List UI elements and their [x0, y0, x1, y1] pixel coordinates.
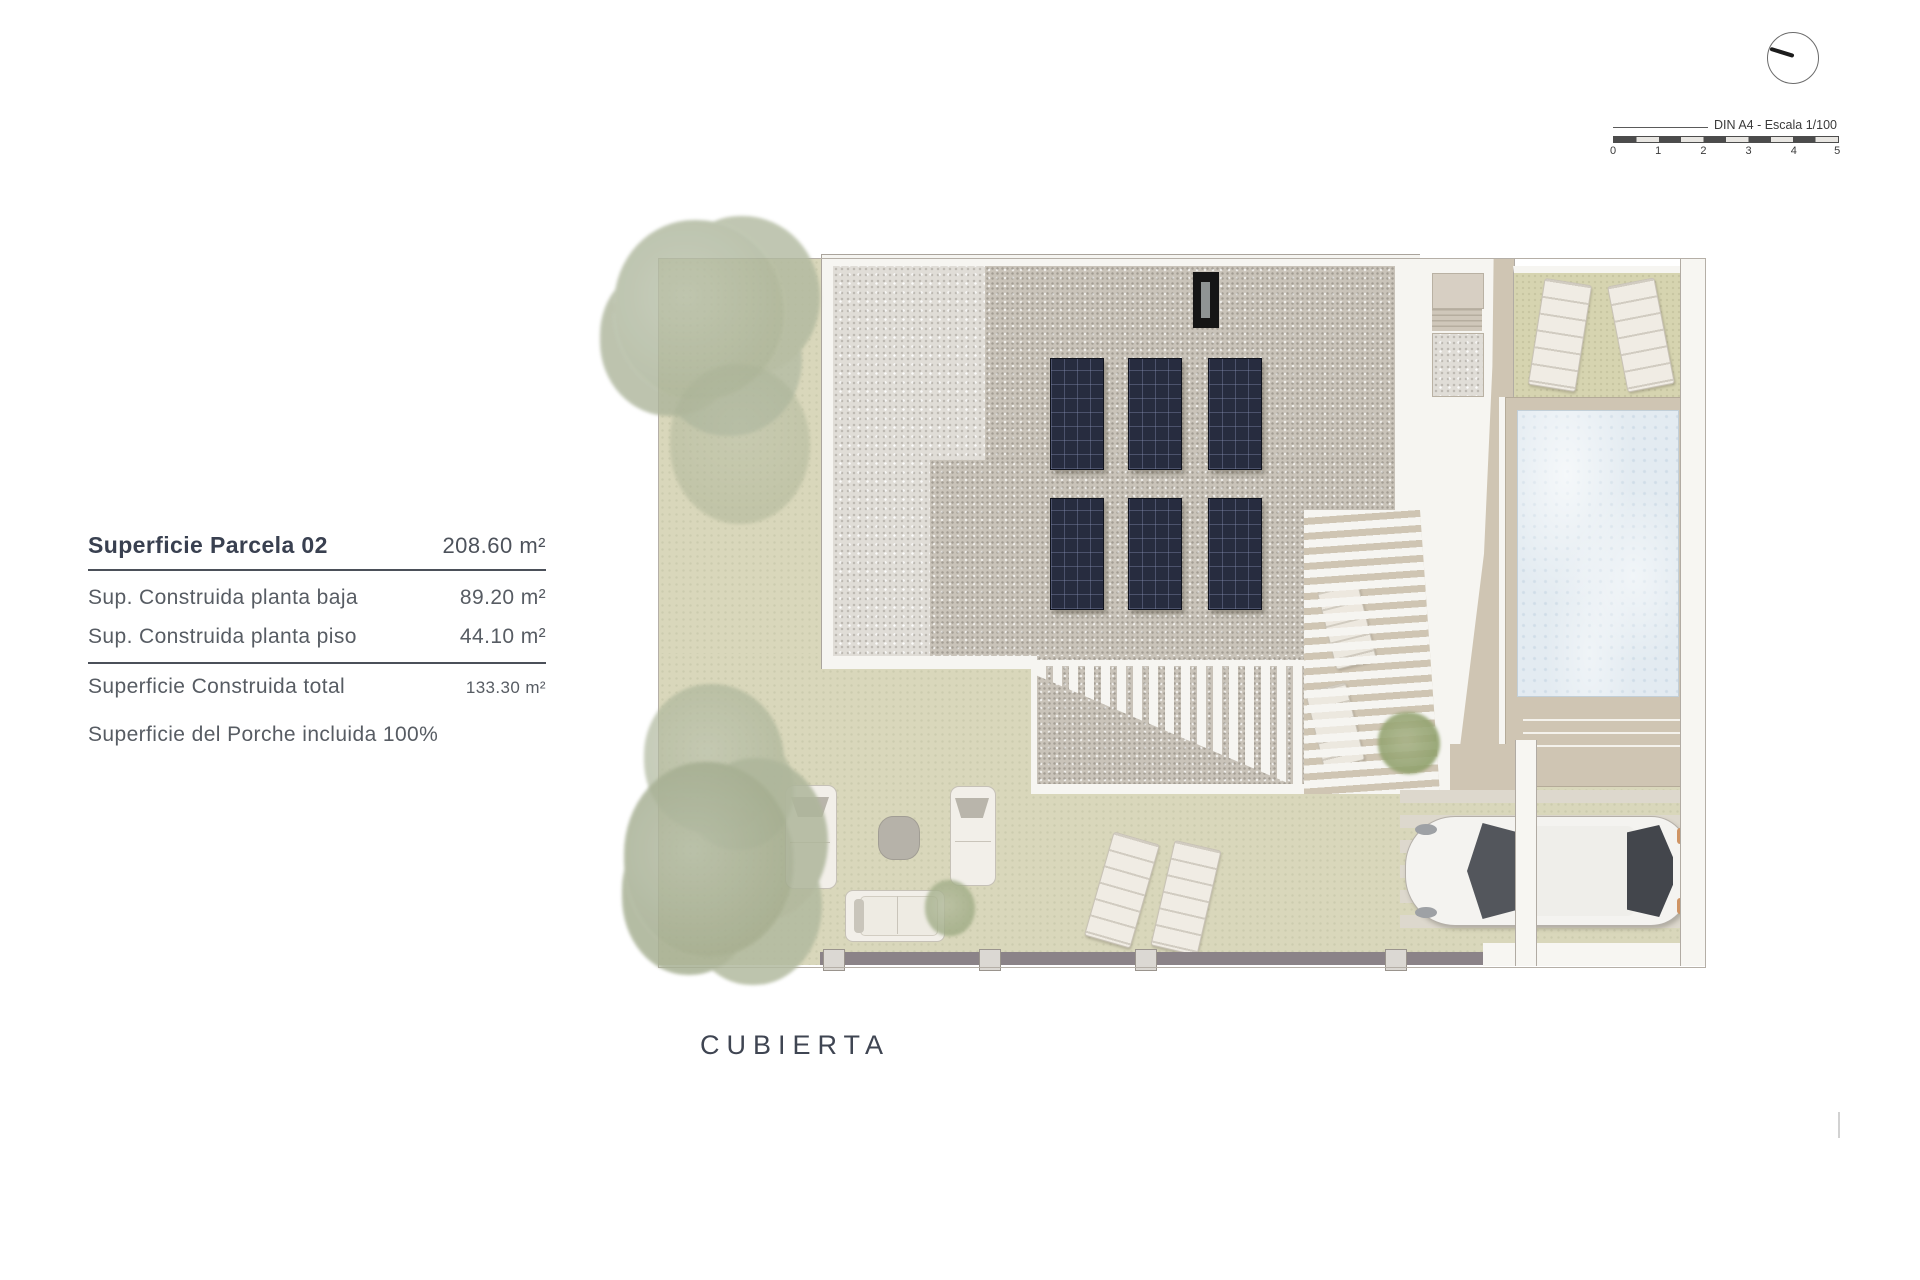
sun-lounger-icon: [1607, 277, 1675, 392]
divider: [1613, 127, 1708, 128]
tree-icon: [624, 762, 794, 957]
entry-bay: [1432, 273, 1482, 395]
armchair-headrest: [955, 798, 989, 818]
deck-step: [1523, 745, 1692, 747]
scale-tick: 1: [1655, 145, 1661, 157]
scale-tick: 4: [1791, 145, 1797, 157]
solar-panel-icon: [1128, 498, 1182, 610]
total-label: Superficie Construida total: [88, 675, 345, 699]
fence-post: [1135, 949, 1157, 971]
artifact-line: [1838, 1112, 1840, 1138]
entry-gravel: [1432, 333, 1484, 397]
north-indicator-icon: [1767, 32, 1819, 84]
scale-tick: 0: [1610, 145, 1616, 157]
row-value: 89.20 m²: [460, 586, 546, 610]
sofa-arm: [854, 899, 864, 933]
bush-icon: [925, 880, 975, 936]
sheet-title: CUBIERTA: [700, 1030, 890, 1061]
table-row-total: Superficie Construida total 133.30 m²: [88, 675, 546, 699]
scale-tick: 2: [1700, 145, 1706, 157]
swimming-pool: [1517, 410, 1679, 697]
boundary-wall: [1680, 258, 1706, 966]
table-row: Sup. Construida planta baja 89.20 m²: [88, 586, 546, 610]
chimney-icon: [1193, 272, 1219, 328]
tree-canopy-icon: [670, 364, 810, 524]
entry-landing: [1432, 273, 1484, 309]
sun-lounger-icon: [1528, 278, 1592, 392]
solar-panel-icon: [1208, 498, 1262, 610]
parcel-area-value: 208.60 m²: [442, 533, 546, 559]
terrace-connector: [1450, 744, 1520, 790]
seam: [790, 842, 830, 843]
car-headlight: [1415, 907, 1437, 918]
car-headlight: [1415, 824, 1437, 835]
row-label: Sup. Construida planta piso: [88, 625, 357, 649]
deck-step: [1523, 719, 1692, 721]
fence-post: [1385, 949, 1407, 971]
north-needle-icon: [1770, 47, 1795, 58]
scale-bar-widget: DIN A4 - Escala 1/100 0 1 2 3 4 5: [1613, 30, 1839, 130]
roof-plan-drawing: [630, 214, 1726, 986]
row-label: Sup. Construida planta baja: [88, 586, 358, 610]
lounger-patch: [1513, 266, 1695, 401]
table-row: Sup. Construida planta piso 44.10 m²: [88, 625, 546, 649]
scale-tick: 5: [1834, 145, 1840, 157]
fence-post: [979, 949, 1001, 971]
scale-tick: 3: [1746, 145, 1752, 157]
armchair-headrest: [791, 797, 829, 817]
seam: [897, 896, 898, 934]
scale-label: DIN A4 - Escala 1/100: [1714, 118, 1837, 132]
deck-step: [1523, 732, 1692, 734]
seam: [955, 841, 991, 842]
row-value: 44.10 m²: [460, 625, 546, 649]
solar-panel-icon: [1050, 358, 1104, 470]
side-wall: [1515, 740, 1537, 966]
solar-panel-icon: [1050, 498, 1104, 610]
area-summary-table: Superficie Parcela 02 208.60 m² Sup. Con…: [88, 532, 546, 747]
car-icon: [1405, 816, 1689, 926]
bush-icon: [1378, 712, 1440, 774]
parcel-title: Superficie Parcela 02: [88, 532, 328, 559]
coffee-table-icon: [878, 816, 920, 860]
roof-gravel-dark: [985, 266, 1395, 460]
divider: [88, 662, 546, 664]
solar-panel-icon: [1208, 358, 1262, 470]
porch-note: Superficie del Porche incluida 100%: [88, 723, 546, 747]
fence-post: [823, 949, 845, 971]
scale-ruler: [1613, 136, 1839, 143]
chimney-flue: [1201, 282, 1210, 318]
divider: [88, 569, 546, 571]
entry-steps: [1432, 309, 1482, 331]
solar-panel-icon: [1128, 358, 1182, 470]
total-value: 133.30 m²: [466, 678, 546, 698]
armchair-icon: [950, 786, 996, 886]
